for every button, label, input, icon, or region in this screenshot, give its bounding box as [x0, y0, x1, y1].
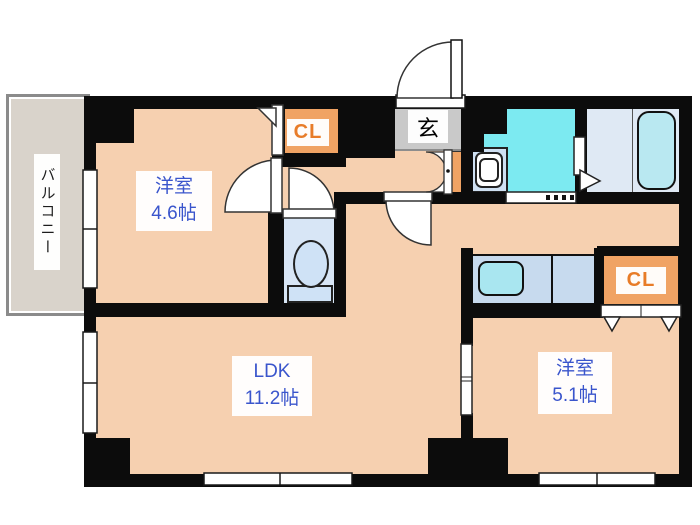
toilet-bowl — [293, 240, 329, 288]
wall — [272, 153, 346, 167]
wall — [679, 96, 692, 487]
bedroom1-name: 洋室 — [151, 174, 196, 201]
bedroom2-label: 洋室 5.1帖 — [538, 352, 612, 414]
wall — [461, 316, 473, 346]
wall — [84, 303, 346, 317]
wall — [461, 148, 473, 196]
closet-top-label: CL — [287, 119, 329, 146]
entrance-label-text: 玄 — [417, 111, 439, 143]
balcony-label: バルコニー — [34, 154, 60, 270]
wall — [461, 248, 473, 310]
wall-pillar — [84, 438, 130, 480]
bedroom2-size: 5.1帖 — [552, 383, 597, 410]
ldk-label: LDK 11.2帖 — [232, 356, 312, 416]
bedroom1-label: 洋室 4.6帖 — [136, 171, 212, 231]
wall — [84, 96, 96, 487]
wall — [338, 96, 395, 158]
bathroom-zone-line — [632, 108, 633, 194]
wall — [461, 303, 603, 318]
wall — [594, 248, 604, 308]
closet-top-label-text: CL — [294, 121, 323, 144]
entrance-label: 玄 — [408, 110, 448, 143]
wall-pillar — [84, 96, 134, 143]
closet-right-label: CL — [616, 267, 666, 294]
bathtub — [637, 111, 676, 190]
balcony-label-text: バルコニー — [37, 167, 58, 257]
wall — [597, 246, 682, 256]
washbasin-bowl — [479, 158, 499, 182]
ldk-name: LDK — [245, 359, 300, 386]
wall — [268, 210, 284, 312]
wall — [575, 105, 587, 195]
ldk-size: 11.2帖 — [245, 386, 300, 413]
floor-plan: バルコニー 洋室 4.6帖 LDK 11.2帖 洋室 5.1帖 玄 CL CL — [0, 0, 700, 525]
bedroom1-size: 4.6帖 — [151, 201, 196, 228]
bedroom2-name: 洋室 — [552, 356, 597, 383]
wall — [84, 474, 692, 487]
kitchen-counter-divider — [551, 255, 553, 305]
wall-pillar — [428, 438, 508, 480]
wall — [337, 192, 682, 204]
kitchen-sink — [478, 261, 524, 296]
front-door — [397, 40, 462, 98]
closet-right-label-text: CL — [627, 269, 656, 292]
wall — [334, 192, 346, 310]
wall — [461, 96, 484, 152]
